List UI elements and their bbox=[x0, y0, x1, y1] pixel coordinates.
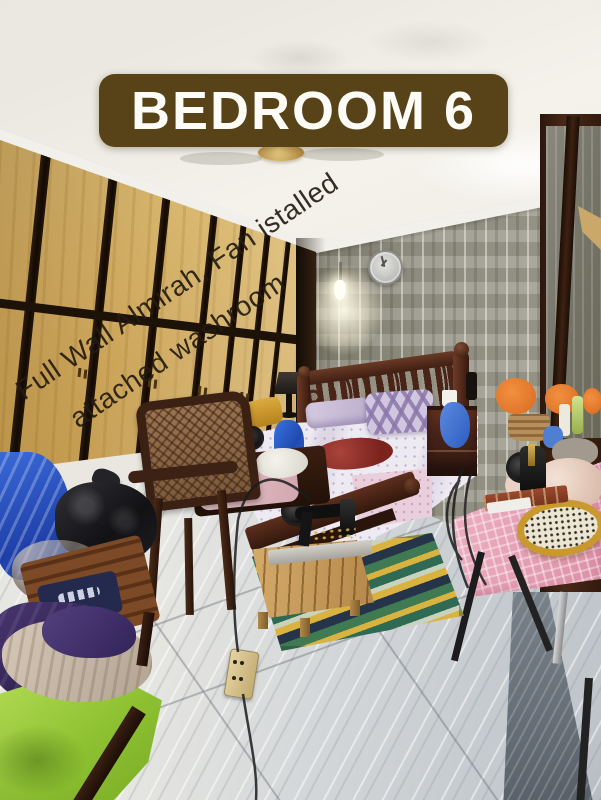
room-label-text: BEDROOM 6 bbox=[131, 80, 476, 142]
bedroom-photo: BEDROOM 6 Full Wall Almirah, Fan istalle… bbox=[0, 0, 601, 800]
room-label-banner: BEDROOM 6 bbox=[99, 74, 508, 147]
